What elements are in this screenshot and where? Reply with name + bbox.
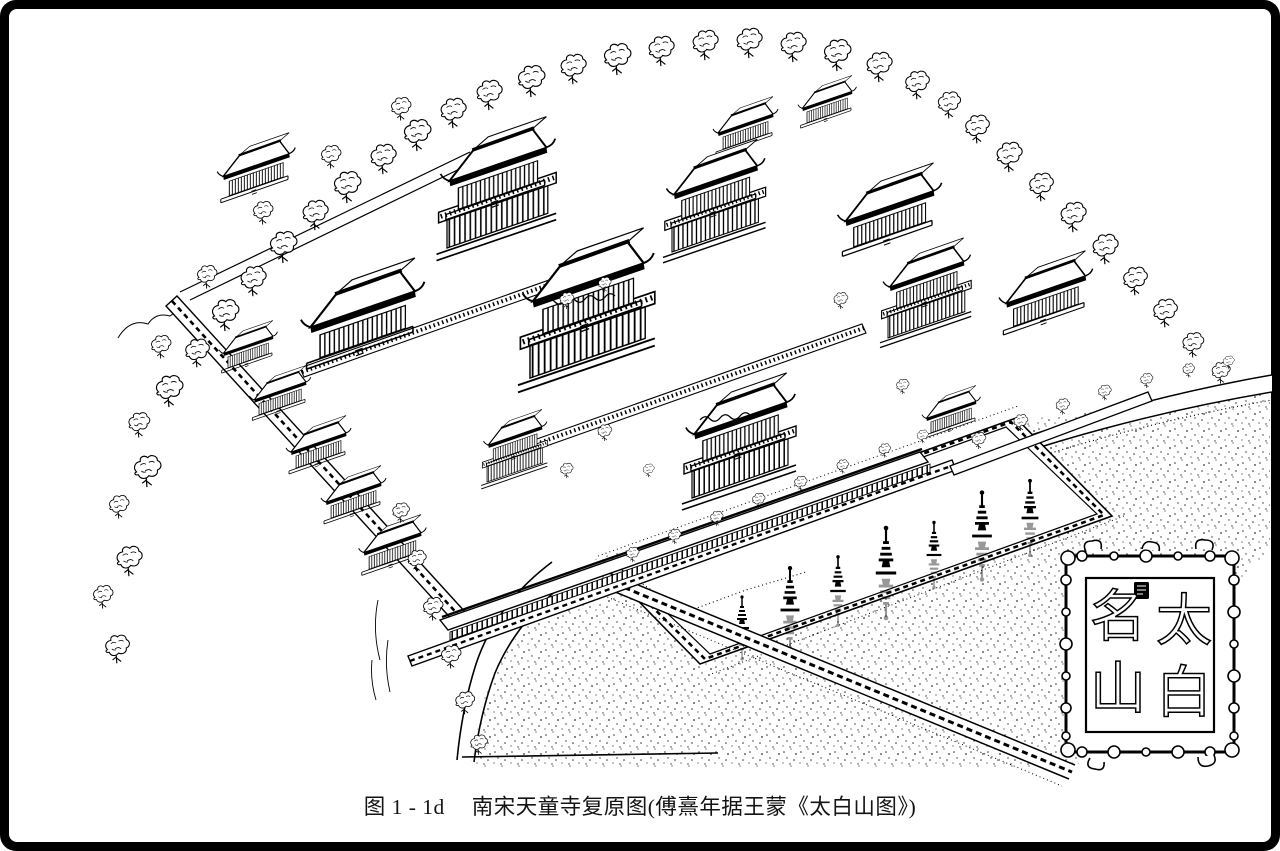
figure-caption-title: 南宋天童寺复原图(傅熹年据王蒙《太白山图》)	[472, 795, 917, 819]
seal-cartouche: 太 白 名 山	[1060, 540, 1240, 770]
seal-char-tai: 太	[1156, 591, 1212, 653]
temple-illustration: 太 白 名 山	[0, 0, 1280, 851]
figure-caption-label: 图 1 - 1d	[364, 795, 445, 819]
seal-char-shan: 山	[1090, 659, 1146, 721]
figure-caption: 图 1 - 1d南宋天童寺复原图(傅熹年据王蒙《太白山图》)	[0, 790, 1280, 821]
seal-char-ming: 名	[1090, 587, 1146, 649]
seal-char-bai: 白	[1156, 663, 1212, 725]
scanned-figure-page: 太 白 名 山 图 1 - 1d南宋天童寺复原图(傅熹年据王蒙《太白山图》)	[0, 0, 1280, 851]
